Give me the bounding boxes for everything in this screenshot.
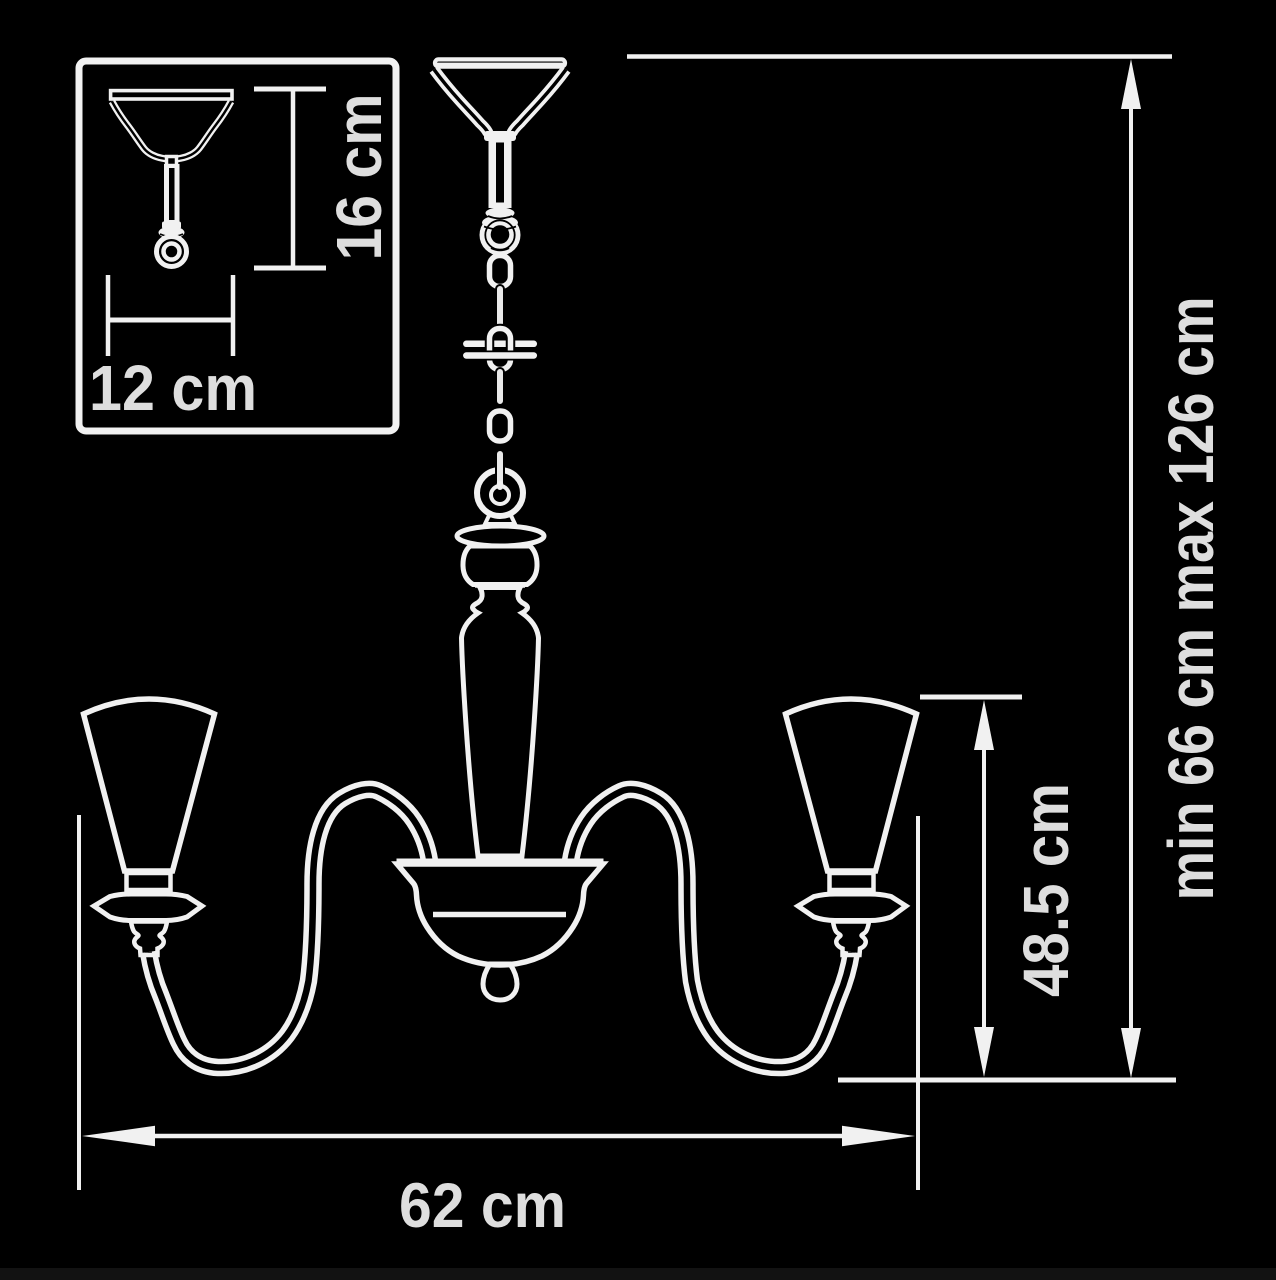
svg-text:16 cm: 16 cm (323, 94, 395, 261)
svg-text:48.5 cm: 48.5 cm (1010, 783, 1082, 997)
svg-text:62 cm: 62 cm (399, 1171, 566, 1241)
svg-text:min 66 cm max 126 cm: min 66 cm max 126 cm (1155, 297, 1227, 901)
svg-text:12 cm: 12 cm (89, 352, 257, 424)
